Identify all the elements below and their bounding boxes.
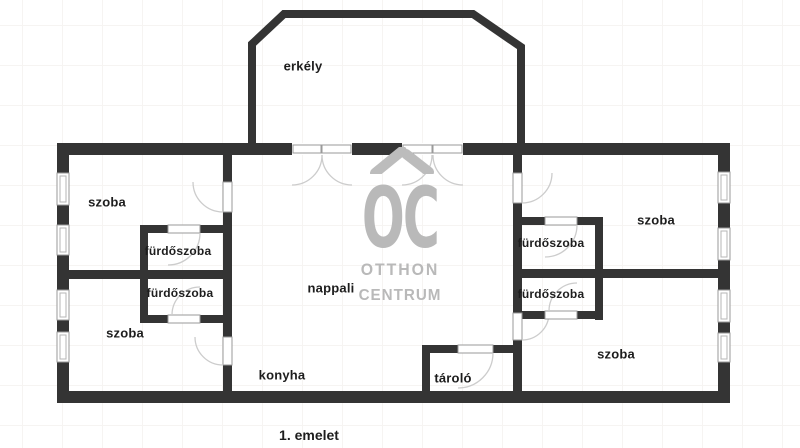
balcony-wall bbox=[252, 14, 521, 147]
door-furdoszoba-right-top bbox=[545, 217, 577, 257]
balcony-door-left bbox=[292, 143, 352, 185]
door-tarolo bbox=[458, 345, 493, 388]
door-furdoszoba-right-bottom bbox=[545, 283, 577, 319]
window-glyph bbox=[718, 290, 730, 322]
window-glyph bbox=[57, 173, 69, 205]
floor-plan-svg bbox=[0, 0, 800, 448]
door-szoba-top-left bbox=[193, 182, 232, 212]
walls bbox=[57, 143, 730, 403]
window-glyph bbox=[57, 332, 69, 362]
window-glyph bbox=[57, 290, 69, 320]
window-glyph bbox=[718, 333, 730, 362]
window-glyph bbox=[57, 225, 69, 255]
window-glyph bbox=[718, 228, 730, 260]
door-szoba-top-right bbox=[513, 173, 552, 203]
door-furdoszoba-left-bottom bbox=[168, 287, 200, 323]
floor-label: 1. emelet bbox=[279, 427, 339, 443]
window-glyph bbox=[718, 172, 730, 203]
balcony-door-right bbox=[402, 143, 463, 185]
door-szoba-bottom-left bbox=[195, 337, 232, 365]
door-furdoszoba-left-top bbox=[168, 225, 200, 265]
floor-plan-page: OC OTTHON CENTRUM bbox=[0, 0, 800, 448]
